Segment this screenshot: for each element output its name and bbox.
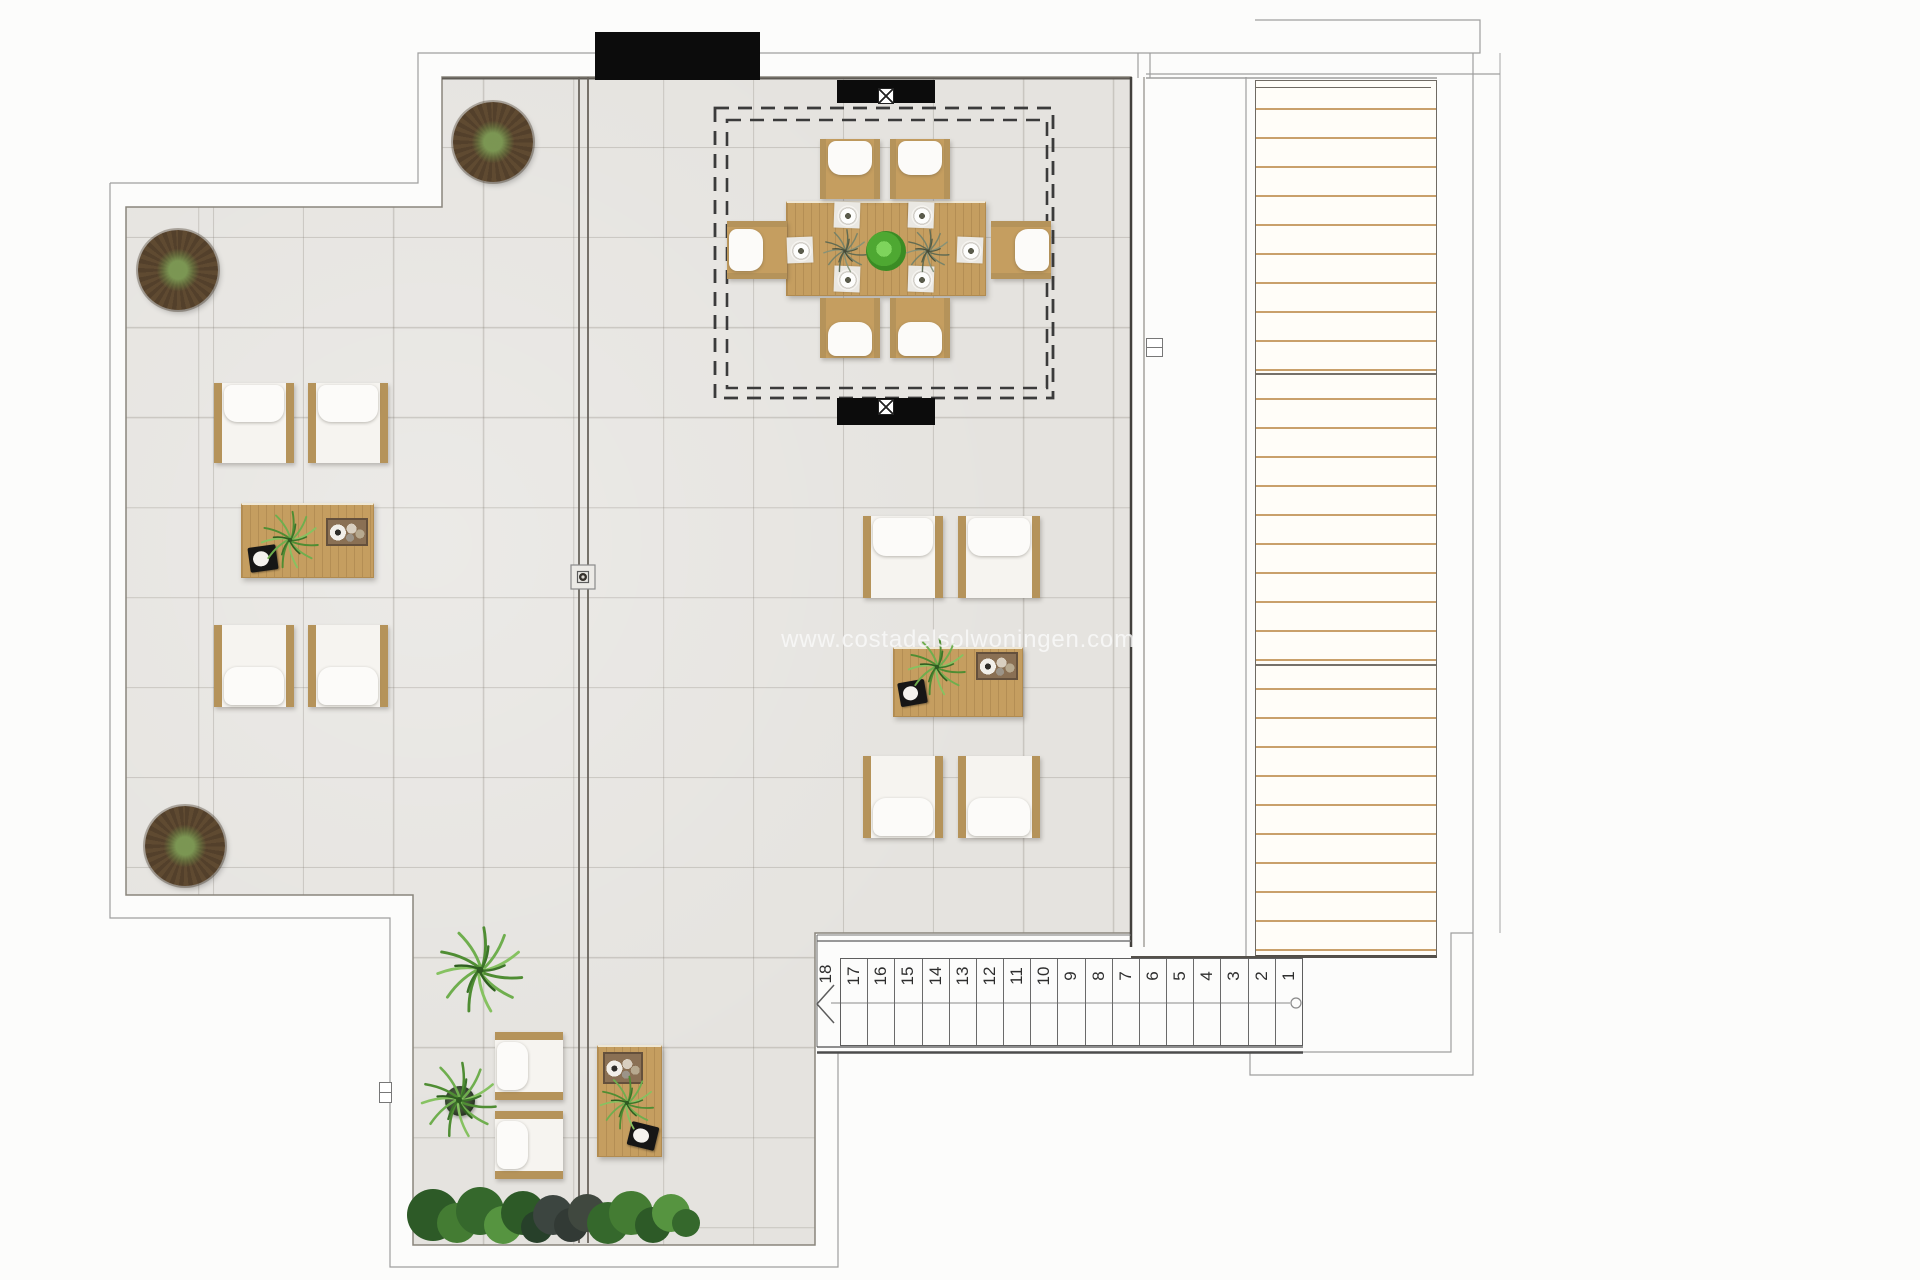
- stair-tread: 12: [977, 959, 1004, 1045]
- dining-chair: [820, 298, 880, 358]
- stair-number: 8: [1088, 965, 1110, 987]
- flower-sprig: [821, 227, 869, 275]
- table-plant: [597, 1073, 657, 1133]
- cup-tray: [326, 518, 368, 546]
- stair-tread: 6: [1140, 959, 1167, 1045]
- stair-tread: 16: [868, 959, 895, 1045]
- plate: [960, 240, 982, 262]
- greenery-bed: [405, 1183, 695, 1245]
- tree-planter: [453, 102, 533, 182]
- stair-treads: 1716151413121110987654321: [840, 958, 1303, 1046]
- dining-chair: [890, 298, 950, 358]
- stair-number: 5: [1169, 965, 1191, 987]
- armchair: [958, 516, 1040, 598]
- stair-number: 18: [815, 963, 837, 985]
- armchair: [214, 383, 294, 463]
- table-plant: [258, 508, 322, 572]
- stair-number: 11: [1006, 965, 1028, 987]
- lounge-chair: [495, 1111, 563, 1179]
- dining-chair: [991, 221, 1051, 279]
- tree-planter: [138, 230, 218, 310]
- armchair: [863, 516, 943, 598]
- stair-number: 15: [897, 965, 919, 987]
- place-setting: [956, 236, 986, 266]
- door-marker-right: [1146, 338, 1163, 357]
- stair-direction-label: 18: [814, 961, 838, 991]
- door-marker-left: [379, 1082, 392, 1103]
- plate: [837, 205, 859, 227]
- stair-number: 10: [1033, 965, 1055, 987]
- table-centerpiece-plant: [866, 231, 906, 271]
- stair-tread: 2: [1249, 959, 1276, 1045]
- wall-section-top: [595, 32, 760, 80]
- watermark: www.costadelsolwoningen.com: [781, 626, 1135, 654]
- flower-sprig: [904, 227, 952, 275]
- cup-tray: [976, 652, 1018, 680]
- tree-planter: [145, 806, 225, 886]
- dining-chair: [890, 139, 950, 199]
- slat-deck-divider: [1256, 373, 1436, 375]
- stair-tread: 8: [1086, 959, 1113, 1045]
- stair-number: 12: [979, 965, 1001, 987]
- stair-number: 13: [952, 965, 974, 987]
- stair-number: 7: [1115, 965, 1137, 987]
- armchair: [214, 625, 294, 707]
- slat-deck-top-edge: [1256, 87, 1431, 89]
- armchair: [958, 756, 1040, 838]
- stair-number: 4: [1196, 965, 1218, 987]
- stair-tread: 4: [1194, 959, 1221, 1045]
- stair-tread: 17: [841, 959, 868, 1045]
- stair-number: 17: [843, 965, 865, 987]
- stair-tread: 14: [923, 959, 950, 1045]
- armchair: [863, 756, 943, 838]
- stair-number: 3: [1223, 965, 1245, 987]
- slat-deck: [1255, 80, 1437, 957]
- stair-tread: 7: [1113, 959, 1140, 1045]
- stair-number: 14: [925, 965, 947, 987]
- stair-number: 16: [870, 965, 892, 987]
- armchair: [308, 625, 388, 707]
- potted-fern: [417, 1058, 501, 1142]
- plate: [790, 240, 812, 262]
- stair-tread: 1: [1276, 959, 1302, 1045]
- stair-number: 6: [1142, 965, 1164, 987]
- slat-deck-divider: [1256, 664, 1436, 666]
- stair-tread: 15: [895, 959, 922, 1045]
- stair-tread: 13: [950, 959, 977, 1045]
- stair-tread: 5: [1167, 959, 1194, 1045]
- plate: [911, 205, 933, 227]
- column-x-marker-top: [878, 88, 894, 104]
- place-setting: [786, 236, 816, 266]
- stair-number: 2: [1251, 965, 1273, 987]
- stair-number: 1: [1278, 965, 1300, 987]
- fern-plant: [432, 922, 528, 1018]
- stair-tread: 10: [1031, 959, 1058, 1045]
- armchair: [308, 383, 388, 463]
- stair-number: 9: [1060, 965, 1082, 987]
- stair-tread: 11: [1004, 959, 1031, 1045]
- lounge-chair: [495, 1032, 563, 1100]
- dining-chair: [727, 221, 787, 279]
- stair-tread: 9: [1058, 959, 1085, 1045]
- stair-tread: 3: [1221, 959, 1248, 1045]
- dining-chair: [820, 139, 880, 199]
- terrace-floor-plan: 1716151413121110987654321 18: [0, 0, 1920, 1280]
- column-x-marker-bottom: [878, 399, 894, 415]
